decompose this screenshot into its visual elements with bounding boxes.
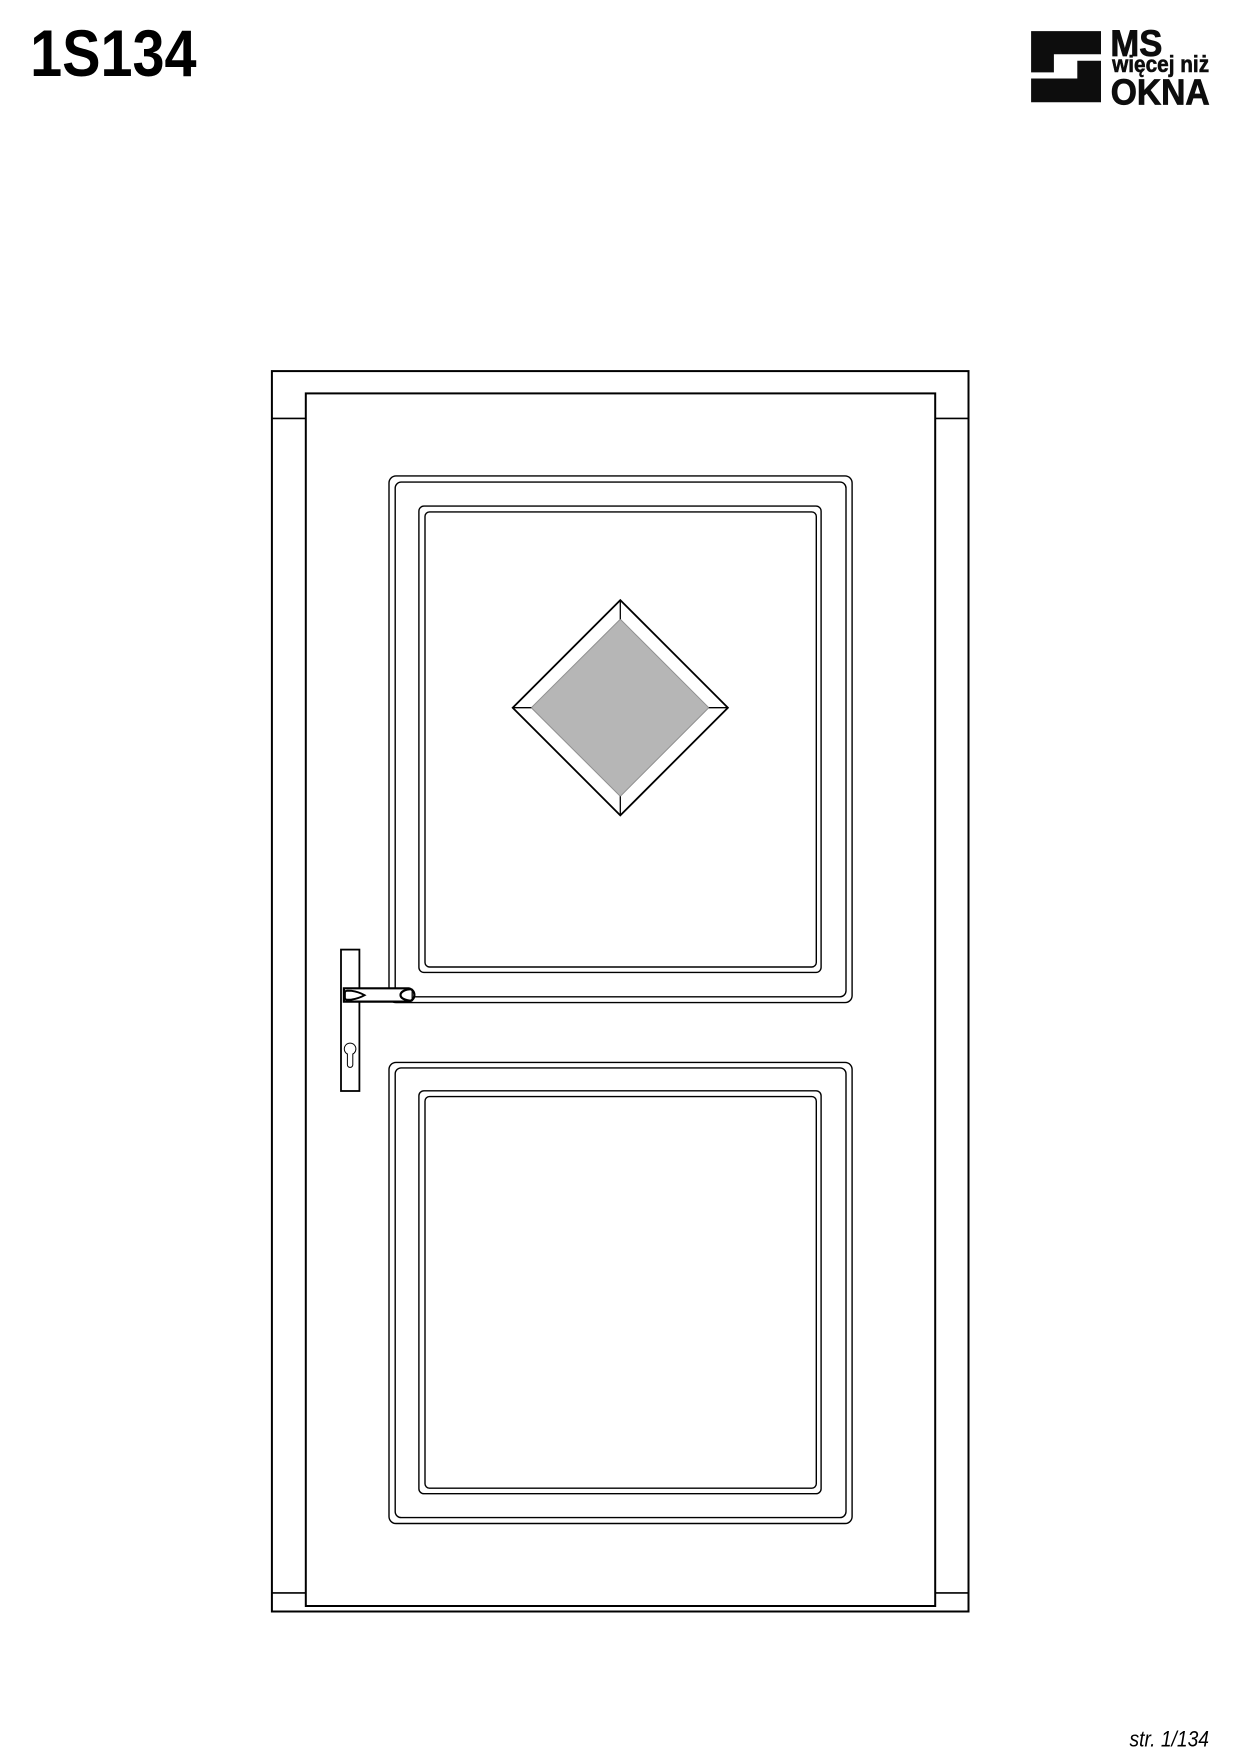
- svg-text:OKNA: OKNA: [1111, 72, 1210, 113]
- svg-text:str. 1/134: str. 1/134: [1130, 1726, 1210, 1751]
- svg-text:1S134: 1S134: [30, 16, 197, 90]
